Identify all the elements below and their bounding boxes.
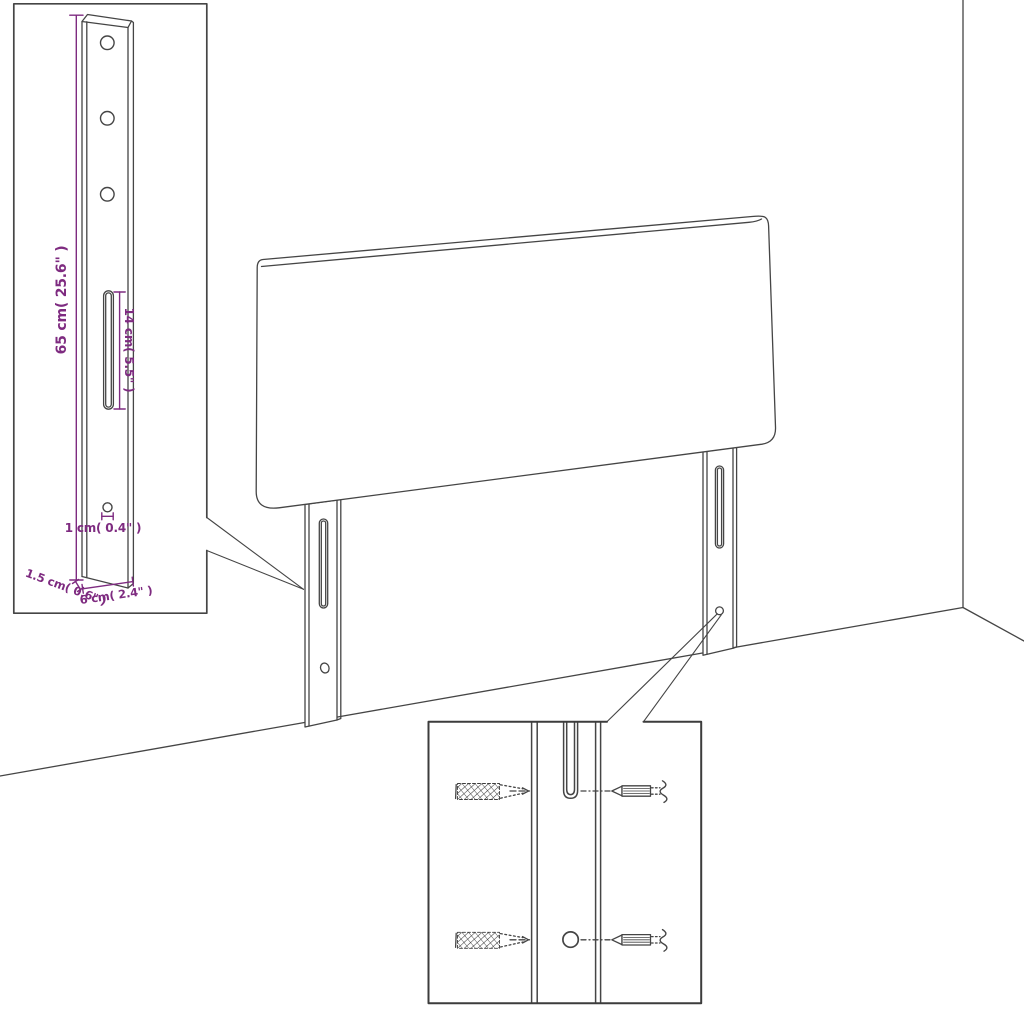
dim-hole-diameter-label: 1 cm( 0.4" )	[65, 521, 142, 535]
product-diagram-canvas: 65 cm( 25.6" ) 14 cm( 5.5" ) 1 cm( 0.4" …	[0, 0, 1024, 1024]
right-leg-hole	[716, 607, 724, 615]
headboard-panel	[256, 216, 775, 508]
dim-slot-length-label: 14 cm( 5.5" )	[122, 308, 136, 393]
left-leg-slot	[319, 519, 327, 608]
diagram-line-art	[0, 0, 1024, 1024]
dim-height-label: 65 cm( 25.6" )	[54, 246, 70, 355]
callout-leader-lines	[207, 518, 304, 590]
headboard-right-leg	[703, 447, 737, 655]
callout-mounting-hardware	[429, 614, 722, 1003]
right-leg-slot	[715, 466, 723, 548]
headboard-left-leg	[305, 500, 341, 727]
wall-corner	[963, 0, 1024, 641]
